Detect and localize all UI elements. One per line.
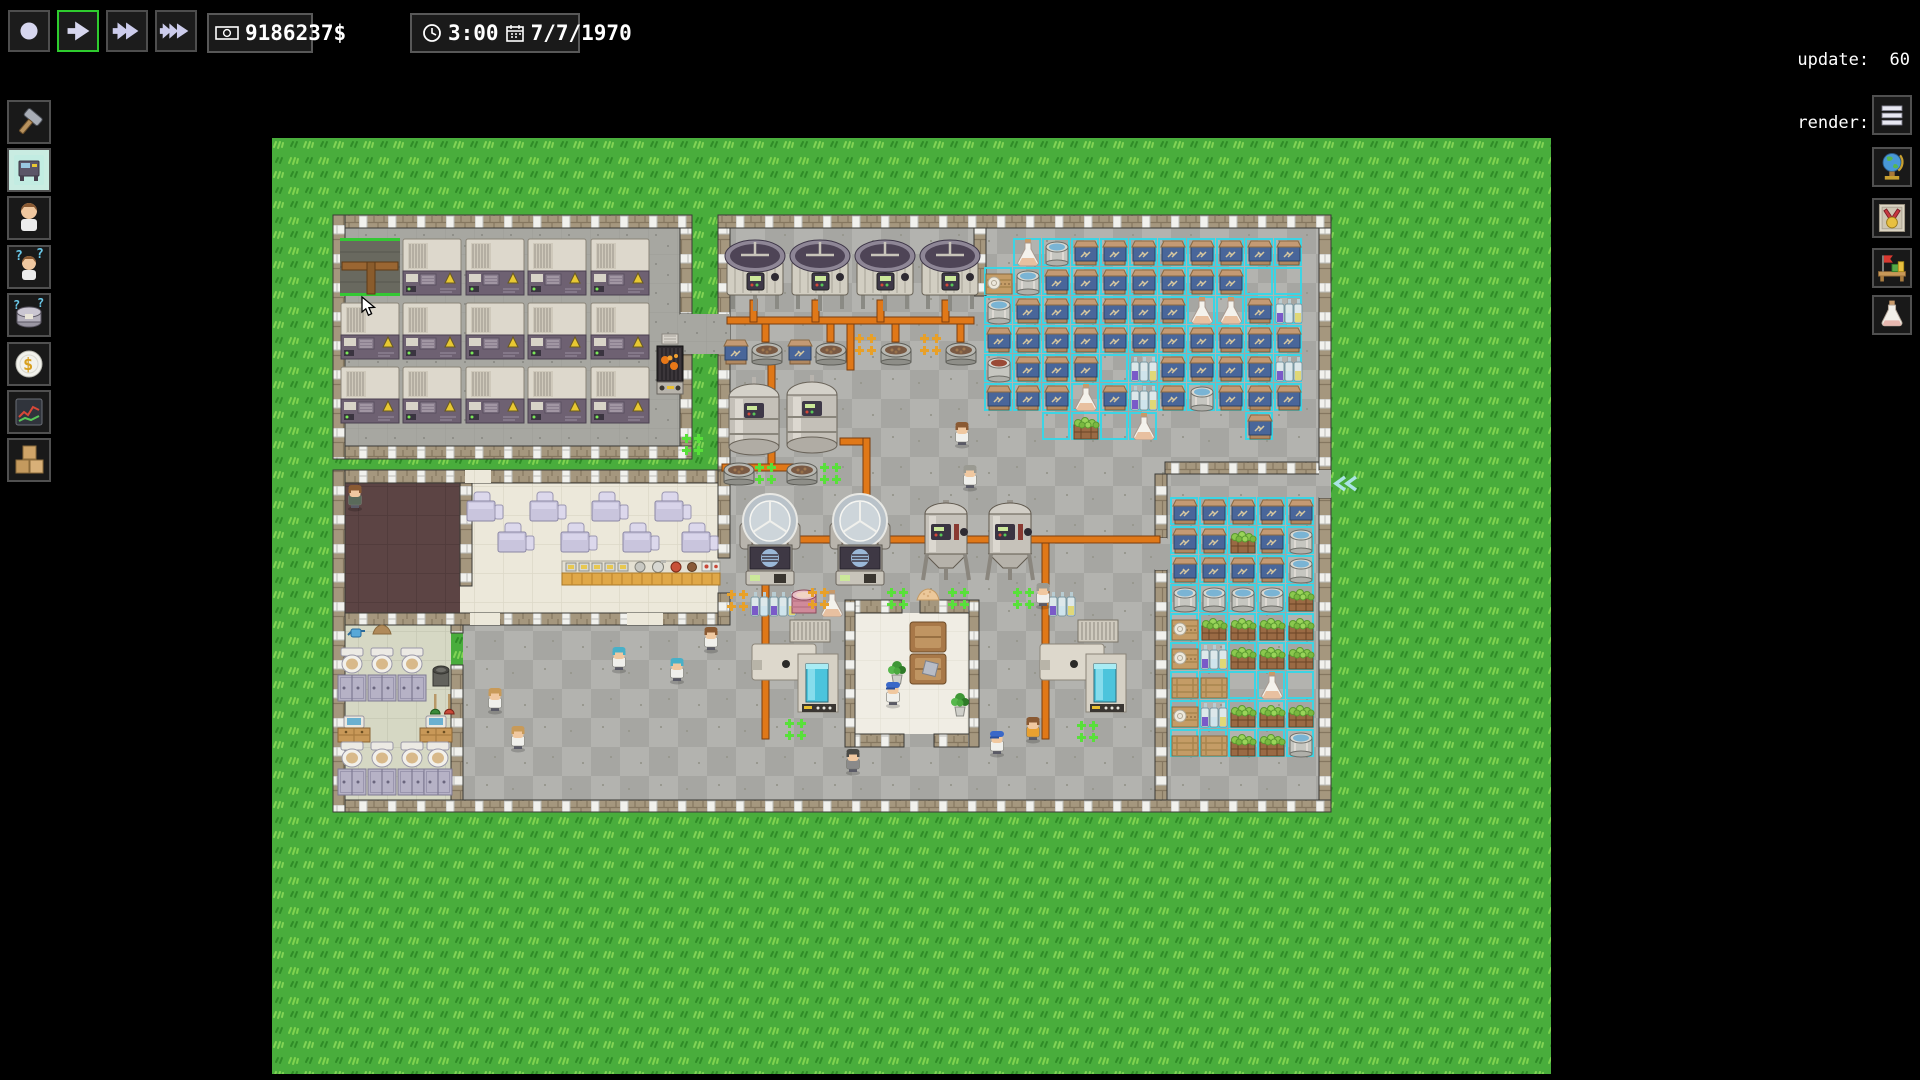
worker[interactable]	[612, 647, 626, 674]
svg-text:?: ?	[37, 296, 44, 310]
map-object-vat[interactable]	[790, 240, 850, 311]
wall	[680, 228, 692, 314]
worker[interactable]	[511, 726, 525, 753]
item-sack[interactable]	[1202, 529, 1226, 553]
item-sack[interactable]	[1132, 299, 1156, 323]
item-sack[interactable]	[1248, 241, 1272, 265]
item-sack[interactable]	[987, 386, 1011, 410]
item-sack[interactable]	[1219, 386, 1243, 410]
stop-button[interactable]	[8, 10, 50, 52]
map-object-machine[interactable]	[403, 303, 461, 359]
item-hops[interactable]	[1260, 648, 1285, 670]
wall	[333, 446, 692, 459]
item-pallet[interactable]	[1172, 649, 1198, 669]
map-object-sack[interactable]	[788, 340, 812, 364]
calendar-icon	[505, 23, 525, 43]
tool-boxes-button[interactable]	[7, 438, 51, 482]
map-object-stall[interactable]	[368, 675, 396, 701]
floor-dark	[345, 483, 460, 613]
menu-icon	[1874, 97, 1910, 133]
item-sack[interactable]	[1219, 270, 1243, 294]
item-sack[interactable]	[1132, 270, 1156, 294]
medal-icon	[1874, 200, 1910, 236]
item-sack[interactable]	[1161, 357, 1185, 381]
wall	[848, 734, 904, 747]
pipe	[1042, 543, 1049, 739]
door-gap	[680, 314, 730, 354]
worker[interactable]	[488, 688, 502, 715]
map-object-stall[interactable]	[398, 675, 426, 701]
item-water[interactable]	[1232, 588, 1254, 612]
item-water[interactable]	[1290, 559, 1312, 583]
map-object-couch[interactable]	[910, 622, 946, 652]
map-object-counter[interactable]	[562, 560, 720, 585]
map-object-stall[interactable]	[398, 769, 426, 795]
item-sack[interactable]	[1016, 386, 1040, 410]
hammer-icon	[9, 102, 49, 142]
item-sack[interactable]	[1173, 529, 1197, 553]
map-object-stall[interactable]	[338, 675, 366, 701]
time-value: 3:00	[448, 21, 499, 45]
wall	[969, 600, 979, 747]
map-object-centrifuge[interactable]	[830, 494, 890, 585]
wall	[718, 215, 1331, 228]
money-icon	[215, 23, 239, 43]
item-sack[interactable]	[1190, 241, 1214, 265]
item-sack[interactable]	[1190, 270, 1214, 294]
play-button[interactable]	[57, 10, 99, 52]
menu-globe-button[interactable]	[1872, 147, 1912, 187]
wall	[451, 665, 463, 800]
fffwd-button[interactable]	[155, 10, 197, 52]
map-object-machine[interactable]	[591, 367, 649, 423]
item-sack[interactable]	[1016, 357, 1040, 381]
worker[interactable]	[1036, 583, 1050, 610]
map-object-toilet[interactable]	[341, 742, 363, 767]
item-sack[interactable]	[1231, 500, 1255, 524]
item-hops[interactable]	[1231, 706, 1256, 728]
pipe	[827, 324, 834, 342]
wall	[1155, 570, 1167, 800]
map-object-machine[interactable]	[341, 367, 399, 423]
wall	[460, 483, 472, 586]
wall	[1319, 498, 1331, 800]
map-object-stall[interactable]	[424, 769, 452, 795]
item-sack[interactable]	[1248, 299, 1272, 323]
item-water[interactable]	[1261, 588, 1283, 612]
svg-text:$: $	[23, 355, 33, 375]
item-sack[interactable]	[1202, 500, 1226, 524]
map-object-centrifuge[interactable]	[740, 494, 800, 585]
item-sack[interactable]	[1103, 241, 1127, 265]
worker[interactable]	[670, 658, 684, 685]
worker-icon	[9, 198, 49, 238]
worker[interactable]	[704, 627, 718, 654]
clock-icon	[422, 23, 442, 43]
item-water[interactable]	[988, 300, 1010, 324]
globe-icon	[1874, 149, 1910, 185]
item-sack[interactable]	[1016, 328, 1040, 352]
boxes-icon	[9, 440, 49, 480]
item-sack[interactable]	[1045, 299, 1069, 323]
wall	[451, 625, 463, 633]
item-sack[interactable]	[1190, 328, 1214, 352]
item-sack[interactable]	[1248, 328, 1272, 352]
wall	[934, 734, 974, 747]
map-object-fermenter[interactable]	[729, 377, 779, 455]
map-object-machine[interactable]	[466, 303, 524, 359]
item-pallet[interactable]	[1172, 707, 1198, 727]
item-hops[interactable]	[1074, 418, 1099, 440]
clock-display: 3:00 7/7/1970	[410, 13, 580, 53]
pipe	[877, 300, 884, 322]
map-object-toilet[interactable]	[341, 648, 363, 673]
map-object-vat[interactable]	[725, 240, 785, 311]
item-sack[interactable]	[1248, 415, 1272, 439]
item-sack[interactable]	[1173, 558, 1197, 582]
menu-menu-button[interactable]	[1872, 95, 1912, 135]
svg-text:?: ?	[13, 298, 20, 312]
map-object-bin[interactable]	[433, 666, 449, 686]
map-object-basin[interactable]	[724, 463, 754, 485]
map-object-basin[interactable]	[787, 463, 817, 485]
money-display: 9186237$	[207, 13, 313, 53]
svg-text:?: ?	[15, 249, 23, 264]
item-sack[interactable]	[1260, 500, 1284, 524]
item-hops[interactable]	[1231, 619, 1256, 641]
wall	[845, 600, 855, 747]
item-hops[interactable]	[1289, 590, 1314, 612]
item-sack[interactable]	[1190, 357, 1214, 381]
item-sack[interactable]	[1277, 241, 1301, 265]
item-hops[interactable]	[1289, 648, 1314, 670]
item-water[interactable]	[1174, 588, 1196, 612]
flask-icon	[1874, 297, 1910, 333]
worker[interactable]	[963, 465, 977, 492]
item-hops[interactable]	[1202, 619, 1227, 641]
map-object-toilet[interactable]	[401, 648, 423, 673]
item-sack[interactable]	[1277, 386, 1301, 410]
wall	[1155, 474, 1167, 538]
item-sack[interactable]	[1289, 500, 1313, 524]
chart-icon	[9, 392, 49, 432]
update-counter: update: 60	[1797, 50, 1910, 71]
item-sack[interactable]	[1248, 386, 1272, 410]
money-value: 9186237$	[245, 21, 346, 45]
door-gap	[465, 470, 491, 483]
svg-text:?: ?	[36, 247, 44, 262]
item-shelf[interactable]	[1172, 736, 1198, 756]
item-water[interactable]	[1017, 271, 1039, 295]
item-hops[interactable]	[1231, 735, 1256, 757]
item-sack[interactable]	[1161, 328, 1185, 352]
door-gap	[627, 613, 663, 625]
item-sack[interactable]	[1132, 241, 1156, 265]
door-gap	[470, 613, 500, 625]
tool-worker-button[interactable]	[7, 196, 51, 240]
item-sack[interactable]	[1219, 241, 1243, 265]
worker[interactable]	[955, 422, 969, 449]
item-drum[interactable]	[988, 358, 1010, 382]
map-object-machine[interactable]	[528, 303, 586, 359]
pipe	[892, 324, 899, 342]
wall	[848, 600, 902, 613]
item-sack[interactable]	[1016, 299, 1040, 323]
map-object-machine[interactable]	[466, 367, 524, 423]
item-sack[interactable]	[1074, 299, 1098, 323]
menu-medal-button[interactable]	[1872, 198, 1912, 238]
stop-icon	[10, 12, 48, 50]
ffwd-button[interactable]	[106, 10, 148, 52]
item-sack[interactable]	[1045, 270, 1069, 294]
item-sack[interactable]	[1248, 357, 1272, 381]
pipe	[942, 300, 949, 322]
map-object-machine[interactable]	[403, 367, 461, 423]
map-object-toilet[interactable]	[371, 648, 393, 673]
tool-coin-button[interactable]: $	[7, 342, 51, 386]
map-object-basin[interactable]	[752, 343, 782, 365]
item-bottles[interactable]	[1276, 299, 1302, 323]
wall	[333, 800, 1331, 812]
worker[interactable]	[990, 731, 1004, 758]
item-sack[interactable]	[1103, 386, 1127, 410]
worker-question-icon: ??	[9, 247, 49, 287]
map-object-machine[interactable]	[403, 239, 461, 295]
map-object-machine[interactable]	[528, 367, 586, 423]
tool-hammer-button[interactable]	[7, 100, 51, 144]
wall	[1319, 228, 1331, 470]
item-sack[interactable]	[1173, 500, 1197, 524]
item-sack[interactable]	[1277, 328, 1301, 352]
floor-checker	[463, 625, 718, 812]
item-sack[interactable]	[1045, 328, 1069, 352]
map-object-vat[interactable]	[855, 240, 915, 311]
wall	[333, 215, 692, 228]
door-gap	[1319, 470, 1331, 498]
game-map[interactable]	[272, 138, 1551, 1074]
item-water[interactable]	[1191, 387, 1213, 411]
date-value: 7/7/1970	[531, 21, 632, 45]
item-sack[interactable]	[987, 328, 1011, 352]
tool-chart-button[interactable]	[7, 390, 51, 434]
item-sack[interactable]	[1161, 270, 1185, 294]
item-pallet[interactable]	[986, 274, 1012, 294]
tool-tank-question-button[interactable]: ??	[7, 293, 51, 337]
coin-icon: $	[9, 344, 49, 384]
map-object-machine[interactable]	[528, 239, 586, 295]
map-object-bottles[interactable]	[1049, 592, 1075, 616]
item-sack[interactable]	[1219, 357, 1243, 381]
map-object-toilet[interactable]	[401, 742, 423, 767]
wall	[1165, 462, 1331, 474]
machine-icon	[9, 150, 49, 190]
worker[interactable]	[886, 682, 900, 709]
item-hops[interactable]	[1289, 619, 1314, 641]
item-sack[interactable]	[1202, 558, 1226, 582]
item-shelf[interactable]	[1201, 678, 1227, 698]
wall	[333, 470, 718, 483]
item-shelf[interactable]	[1172, 678, 1198, 698]
map-object-machine[interactable]	[591, 303, 649, 359]
play-icon	[59, 12, 97, 50]
item-bottles[interactable]	[1276, 357, 1302, 381]
pipe	[727, 317, 974, 324]
menu-desk-button[interactable]	[1872, 248, 1912, 288]
item-bottles[interactable]	[1131, 386, 1157, 410]
item-hops[interactable]	[1231, 648, 1256, 670]
menu-flask-button[interactable]	[1872, 295, 1912, 335]
item-sack[interactable]	[1074, 357, 1098, 381]
map-object-toilet[interactable]	[371, 742, 393, 767]
pipe	[957, 324, 964, 342]
desk-icon	[1874, 250, 1910, 286]
map-object-stall[interactable]	[338, 769, 366, 795]
item-water[interactable]	[1290, 530, 1312, 554]
item-bottles[interactable]	[1131, 357, 1157, 381]
item-sack[interactable]	[1074, 328, 1098, 352]
map-object-sack[interactable]	[724, 340, 748, 364]
item-sack[interactable]	[1074, 270, 1098, 294]
item-water[interactable]	[1203, 588, 1225, 612]
worker[interactable]	[1026, 717, 1040, 744]
item-sack[interactable]	[1260, 529, 1284, 553]
tank-question-icon: ??	[9, 295, 49, 335]
item-hops[interactable]	[1260, 619, 1285, 641]
map-object-basin[interactable]	[946, 343, 976, 365]
map-object-pillow[interactable]	[922, 661, 938, 677]
item-sack[interactable]	[1161, 241, 1185, 265]
map-object-basin[interactable]	[881, 343, 911, 365]
item-sack[interactable]	[1045, 357, 1069, 381]
item-hops[interactable]	[1231, 532, 1256, 554]
item-pallet[interactable]	[1172, 620, 1198, 640]
item-sack[interactable]	[1231, 558, 1255, 582]
map-object-machine[interactable]	[591, 239, 649, 295]
item-hops[interactable]	[1260, 735, 1285, 757]
pipe	[762, 324, 769, 342]
item-sack[interactable]	[1074, 241, 1098, 265]
item-sack[interactable]	[1045, 386, 1069, 410]
item-shelf[interactable]	[1201, 736, 1227, 756]
item-sack[interactable]	[1219, 328, 1243, 352]
item-hops[interactable]	[1260, 706, 1285, 728]
tool-worker-question-button[interactable]: ??	[7, 245, 51, 289]
map-object-fermenter[interactable]	[787, 375, 837, 453]
item-water[interactable]	[1046, 242, 1068, 266]
map-object-machine[interactable]	[466, 239, 524, 295]
item-sack[interactable]	[1103, 299, 1127, 323]
map-object-toilet[interactable]	[427, 742, 449, 767]
item-water[interactable]	[1290, 733, 1312, 757]
game-viewport[interactable]	[272, 138, 1551, 1074]
worker[interactable]	[348, 485, 362, 512]
item-hops[interactable]	[1289, 706, 1314, 728]
map-object-selecttile[interactable]	[340, 238, 400, 296]
pipe	[847, 324, 854, 370]
fffwd-icon	[157, 12, 195, 50]
item-bottles[interactable]	[1201, 703, 1227, 727]
ffwd-icon	[108, 12, 146, 50]
map-object-basin[interactable]	[816, 343, 846, 365]
item-sack[interactable]	[1161, 386, 1185, 410]
item-sack[interactable]	[1103, 328, 1127, 352]
item-sack[interactable]	[1161, 299, 1185, 323]
item-sack[interactable]	[1260, 558, 1284, 582]
item-sack[interactable]	[1103, 270, 1127, 294]
tool-machine-button[interactable]	[7, 148, 51, 192]
item-bottles[interactable]	[1201, 645, 1227, 669]
worker[interactable]	[846, 749, 860, 776]
item-sack[interactable]	[1132, 328, 1156, 352]
map-object-stall[interactable]	[368, 769, 396, 795]
wall	[718, 593, 730, 625]
pipe	[812, 300, 819, 322]
map-object-vat[interactable]	[920, 240, 980, 311]
